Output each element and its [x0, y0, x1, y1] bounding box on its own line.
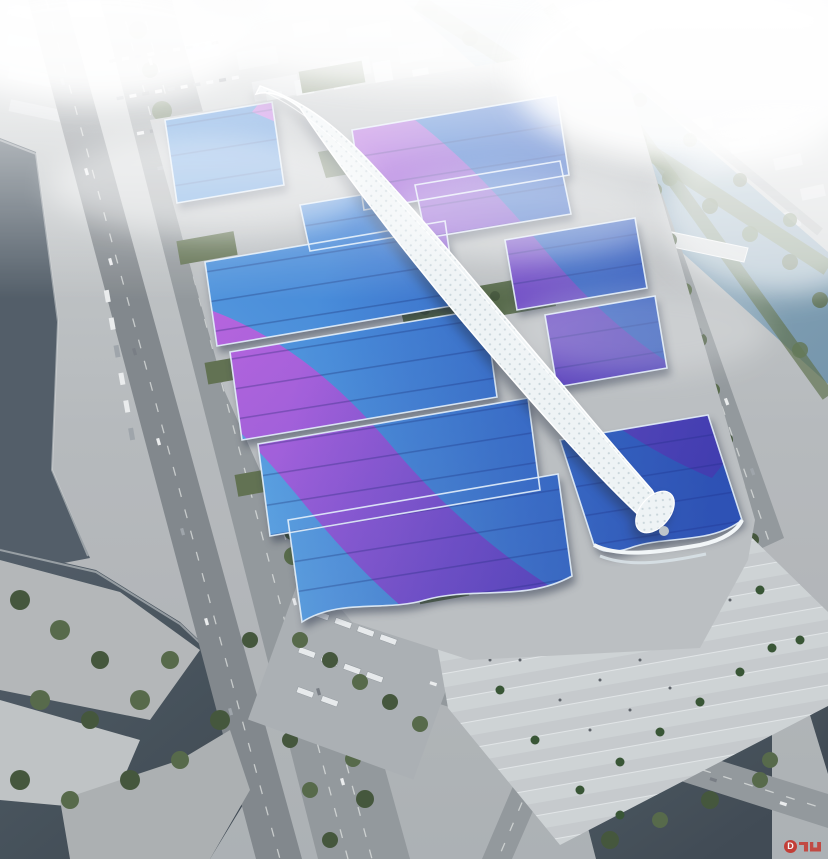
watermark-glyph-icon [799, 842, 808, 852]
watermark-logo-d: D [784, 840, 797, 853]
watermark-glyph-icon [810, 842, 821, 852]
aerial-rendering-scene: D [0, 0, 828, 859]
spine-tip [659, 526, 669, 536]
rendering-canvas [0, 0, 828, 859]
watermark: D [784, 840, 821, 853]
